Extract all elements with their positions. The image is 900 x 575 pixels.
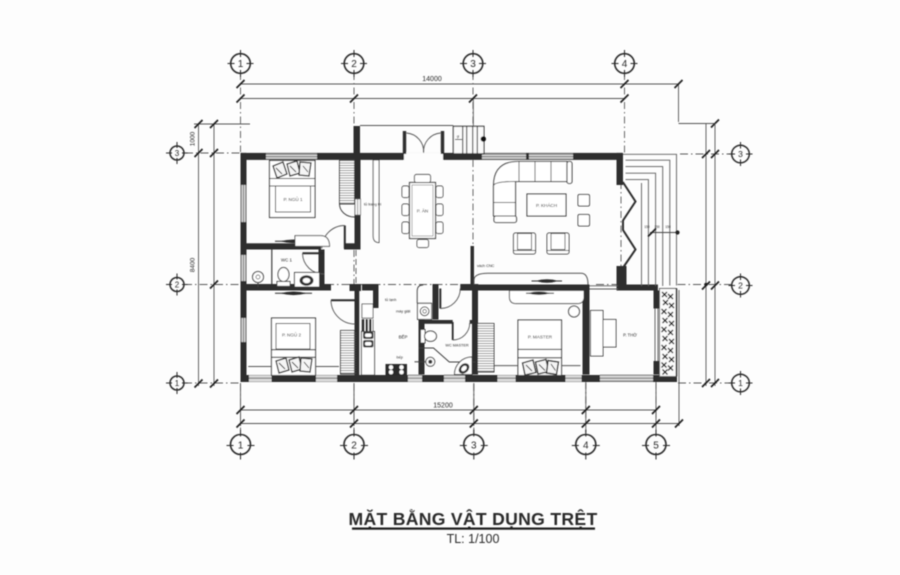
svg-text:máy giặt: máy giặt bbox=[396, 310, 411, 314]
svg-text:4: 4 bbox=[622, 59, 628, 70]
svg-text:3: 3 bbox=[470, 59, 476, 70]
svg-text:150: 150 bbox=[654, 225, 660, 229]
svg-text:tủ trang trí: tủ trang trí bbox=[364, 203, 382, 207]
svg-text:2: 2 bbox=[351, 59, 357, 70]
svg-text:150: 150 bbox=[644, 225, 650, 229]
svg-text:2: 2 bbox=[351, 441, 357, 452]
svg-text:bếp: bếp bbox=[397, 356, 403, 360]
svg-text:4: 4 bbox=[583, 441, 589, 452]
svg-text:2: 2 bbox=[738, 281, 743, 291]
svg-text:1: 1 bbox=[738, 378, 743, 388]
svg-text:TL: 1/100: TL: 1/100 bbox=[447, 532, 500, 546]
svg-text:WC MASTER: WC MASTER bbox=[445, 344, 468, 348]
svg-text:P. THỜ: P. THỜ bbox=[623, 333, 637, 338]
svg-text:14000: 14000 bbox=[422, 76, 442, 83]
svg-text:1: 1 bbox=[238, 59, 244, 70]
svg-text:3: 3 bbox=[738, 149, 743, 159]
svg-text:1: 1 bbox=[175, 379, 180, 388]
svg-text:MẶT BẰNG VẬT DỤNG TRỆT: MẶT BẰNG VẬT DỤNG TRỆT bbox=[349, 508, 598, 529]
svg-text:P. NGỦ 2: P. NGỦ 2 bbox=[282, 332, 302, 338]
svg-text:3: 3 bbox=[471, 441, 477, 452]
svg-text:BẾP: BẾP bbox=[399, 335, 408, 340]
svg-text:P. KHÁCH: P. KHÁCH bbox=[536, 202, 557, 208]
svg-text:2: 2 bbox=[175, 281, 180, 290]
svg-text:WC 1: WC 1 bbox=[281, 258, 293, 263]
svg-text:gi: gi bbox=[457, 135, 460, 139]
svg-text:15200: 15200 bbox=[433, 403, 453, 410]
svg-text:150: 150 bbox=[665, 225, 671, 229]
svg-text:1000: 1000 bbox=[190, 131, 197, 146]
svg-text:P. NGỦ 1: P. NGỦ 1 bbox=[283, 196, 303, 202]
svg-text:vách CNC: vách CNC bbox=[477, 264, 495, 268]
svg-text:tủ lạnh: tủ lạnh bbox=[385, 298, 396, 302]
svg-text:1: 1 bbox=[238, 441, 244, 452]
svg-text:3: 3 bbox=[175, 149, 180, 158]
svg-text:8400: 8400 bbox=[190, 257, 197, 272]
svg-text:P. MASTER: P. MASTER bbox=[528, 335, 553, 340]
svg-text:5: 5 bbox=[653, 441, 659, 452]
svg-text:P. ĂN: P. ĂN bbox=[417, 208, 428, 214]
